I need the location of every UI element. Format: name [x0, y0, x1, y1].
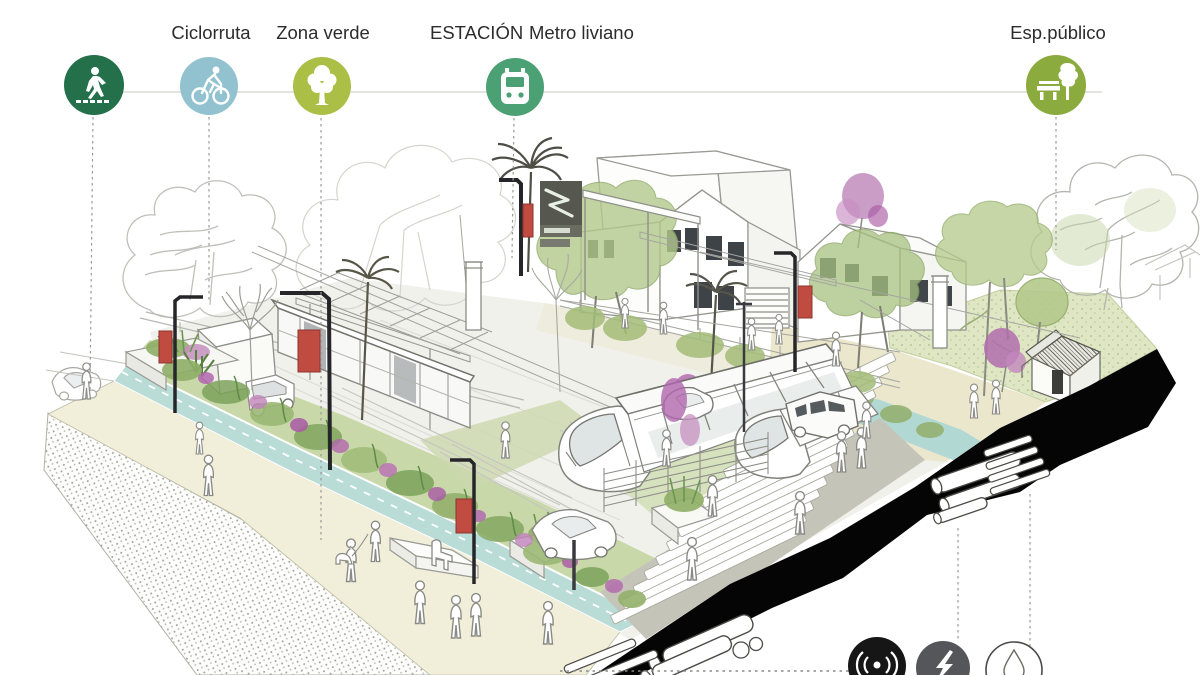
svg-text:Zona verde: Zona verde [276, 22, 370, 43]
svg-text:Metro liviano: Metro liviano [529, 22, 634, 43]
svg-text:Ciclorruta: Ciclorruta [171, 22, 251, 43]
svg-text:ESTACIÓN: ESTACIÓN [430, 22, 523, 43]
svg-text:Esp.público: Esp.público [1010, 22, 1106, 43]
